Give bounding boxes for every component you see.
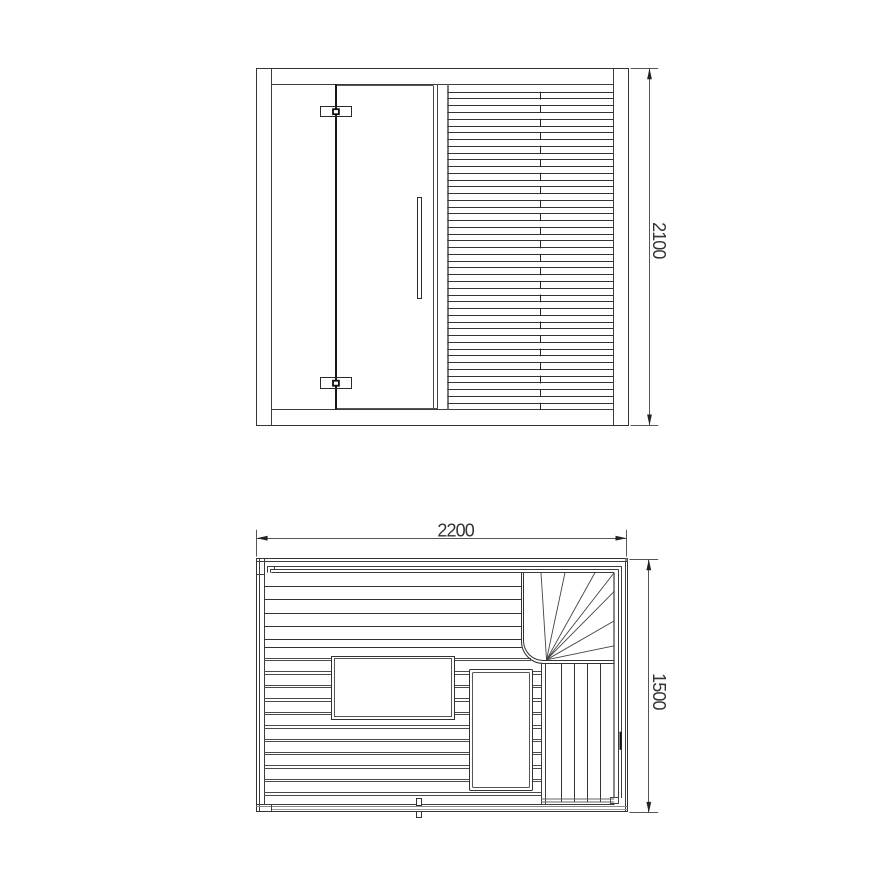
svg-text:2200: 2200 [437,521,474,541]
svg-text:2100: 2100 [649,222,669,259]
svg-text:1500: 1500 [649,673,669,710]
